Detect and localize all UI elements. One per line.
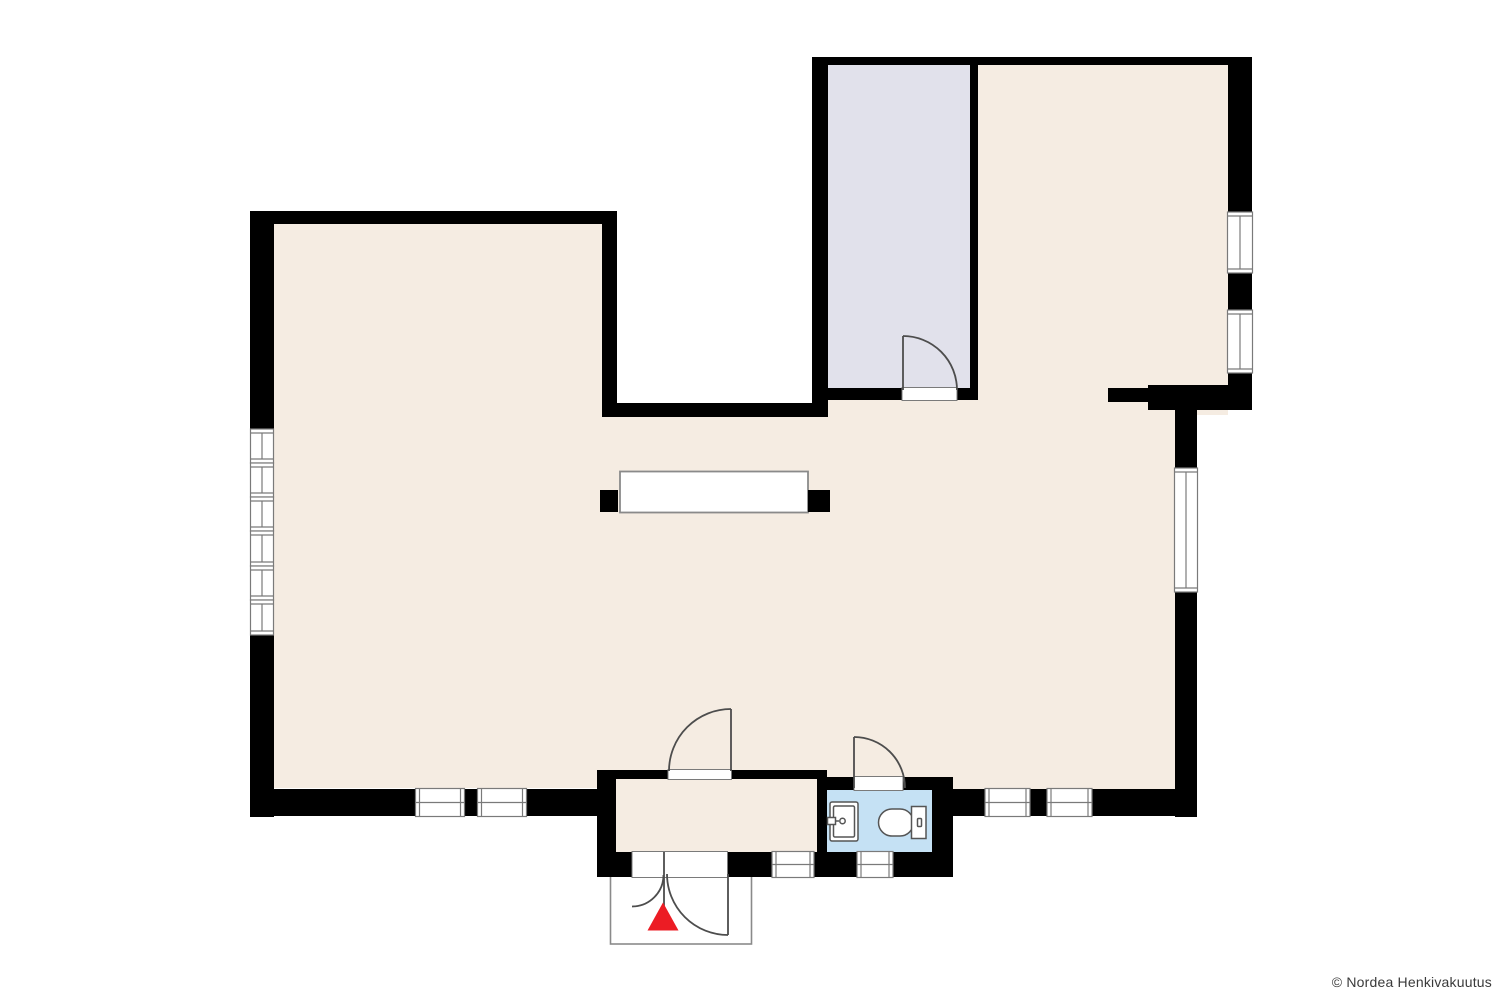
wall-recess-band — [602, 403, 828, 417]
wall-vestibule-left — [597, 770, 616, 877]
window-right-1 — [1228, 212, 1253, 273]
window-bottom-left-2 — [478, 789, 527, 817]
main-room-floor-center — [598, 410, 1197, 789]
door-opening-vestibule — [668, 770, 732, 780]
wall-mid-vertical — [602, 211, 617, 417]
door-opening-bathroom — [854, 777, 903, 791]
window-vestibule — [772, 852, 814, 878]
wall-room-divider — [970, 64, 978, 400]
wall-top-right — [812, 57, 1252, 65]
floor-plan — [0, 0, 1500, 1000]
island-post-left — [600, 490, 618, 512]
window-right-2 — [1228, 310, 1253, 373]
door-opening-entry — [632, 852, 728, 878]
wall-secondary-room-left — [812, 57, 828, 417]
window-left-strip — [251, 429, 274, 635]
vestibule-floor — [616, 778, 818, 852]
sink-icon — [828, 802, 859, 841]
room-floors — [273, 64, 1228, 852]
window-bottom-right-1 — [985, 789, 1030, 817]
copyright-notice: © Nordea Henkivakuutus — [1332, 974, 1492, 990]
island-post-right — [808, 490, 830, 512]
window-bottom-right-2 — [1047, 789, 1092, 817]
wall-stub-right-room — [1108, 388, 1148, 402]
door-opening-secondary-room — [902, 388, 957, 401]
floor-plan-page: © Nordea Henkivakuutus — [0, 0, 1500, 1000]
secondary-room-floor — [826, 64, 972, 390]
top-right-room-floor — [977, 64, 1228, 390]
window-main-right — [1175, 468, 1198, 592]
entrance-porch — [611, 873, 752, 944]
wall-vestibule-right — [817, 770, 827, 852]
island-divider — [600, 472, 830, 513]
island-counter — [620, 472, 808, 513]
window-bottom-left-1 — [416, 789, 465, 817]
window-bathroom — [857, 852, 893, 878]
main-room-floor-left — [273, 224, 617, 788]
wall-top-left — [250, 211, 617, 224]
toilet-icon — [879, 807, 927, 839]
